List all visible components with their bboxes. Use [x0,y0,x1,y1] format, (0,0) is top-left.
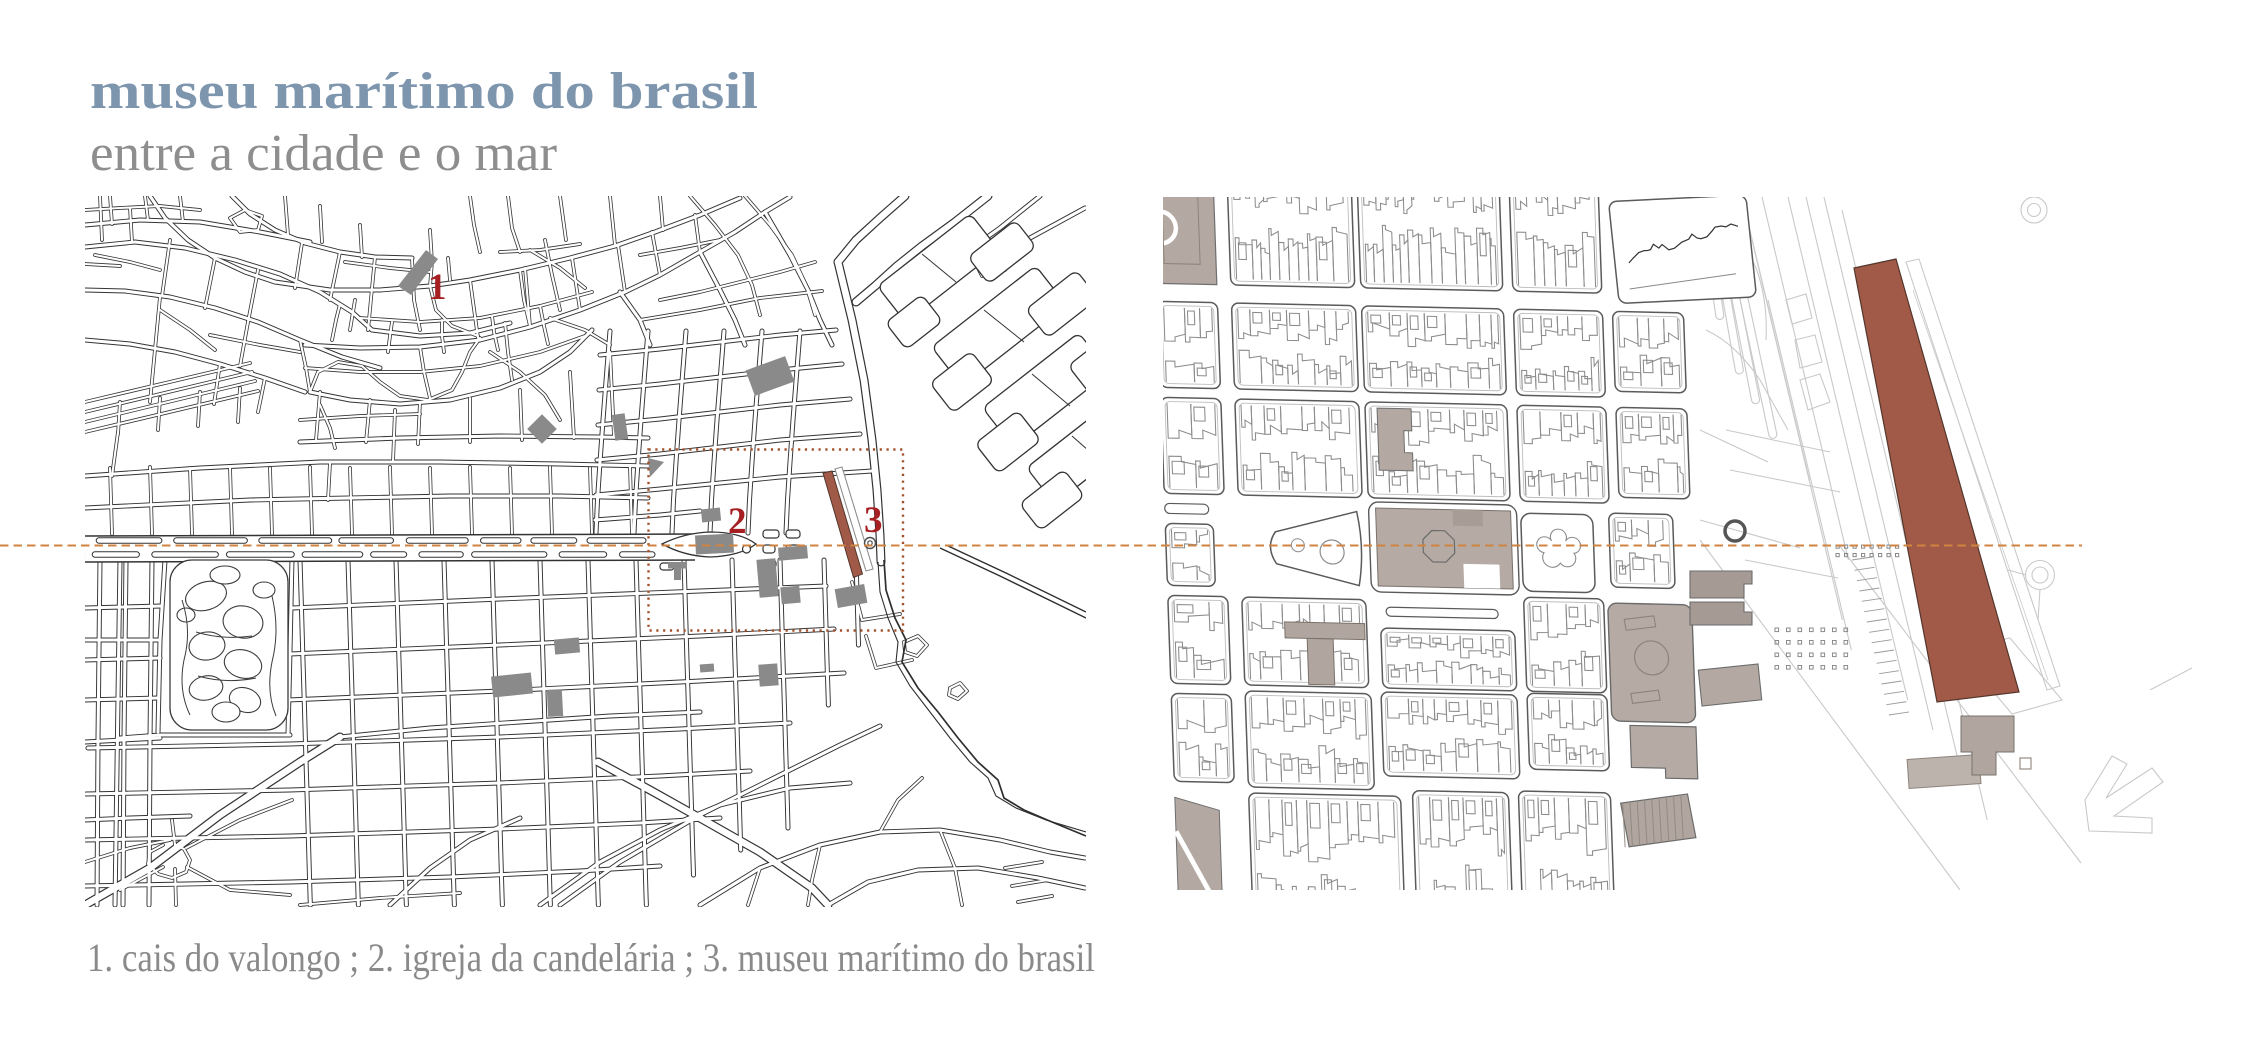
svg-text:2: 2 [728,501,747,542]
svg-text:3: 3 [864,500,883,541]
svg-text:museu marítimo do brasil: museu marítimo do brasil [90,63,758,120]
svg-text:1: 1 [428,267,447,308]
svg-text:entre a cidade e o mar: entre a cidade e o mar [90,125,557,182]
svg-text:1. cais do valongo ; 2. igreja: 1. cais do valongo ; 2. igreja da candel… [87,935,1095,980]
